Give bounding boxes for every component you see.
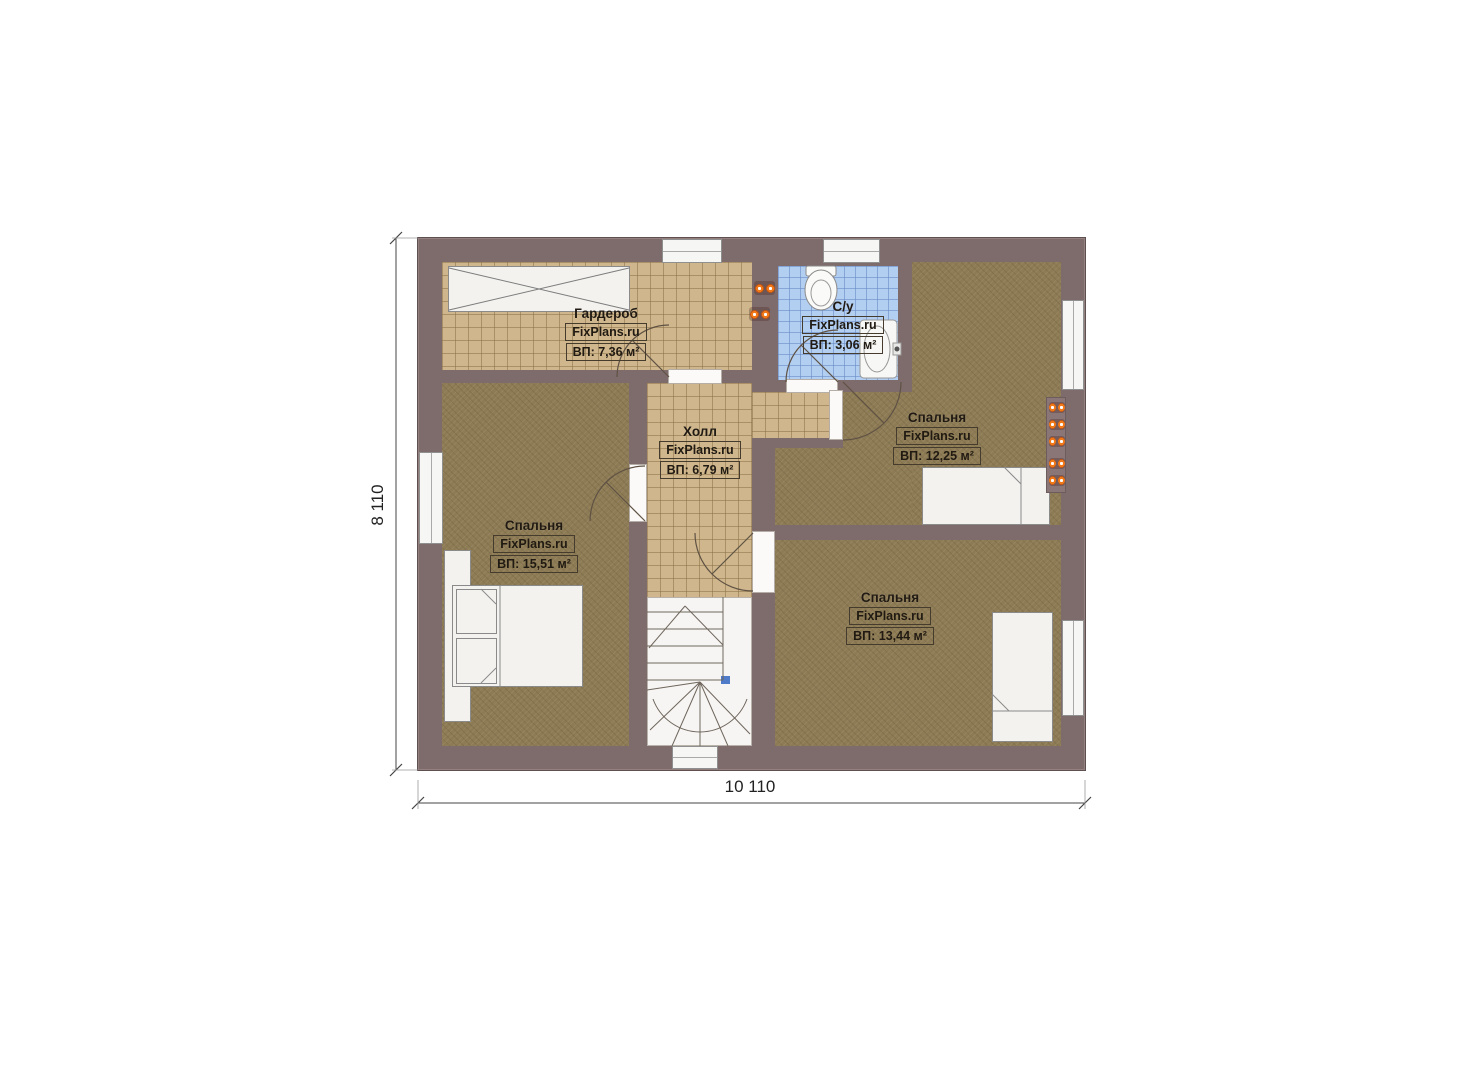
radiator-icon <box>1049 402 1065 413</box>
wall-hall-west <box>629 370 647 746</box>
brand-box: FixPlans.ru <box>849 607 930 625</box>
radiator-icon <box>1049 419 1065 430</box>
area-box: ВП: 15,51 м² <box>490 555 578 573</box>
window-top-2 <box>823 239 880 263</box>
area-box: ВП: 12,25 м² <box>893 447 981 465</box>
pillow <box>456 589 497 634</box>
room-name: Спальня <box>884 410 990 425</box>
area-box: ВП: 7,36 м² <box>566 343 647 361</box>
room-label-bathroom: С/у FixPlans.ru ВП: 3,06 м² <box>793 299 893 354</box>
floor-hall-corridor <box>752 392 830 438</box>
room-label-bedroom-left: Спальня FixPlans.ru ВП: 15,51 м² <box>478 518 590 573</box>
stair-marker <box>721 676 730 684</box>
radiator-icon <box>754 281 775 295</box>
floor-plan-page: Гардероб FixPlans.ru ВП: 7,36 м² С/у Fix… <box>0 0 1474 1080</box>
radiator-icon <box>749 307 770 321</box>
room-name: Спальня <box>836 590 944 605</box>
room-name: С/у <box>793 299 893 314</box>
door-bedroom-bottom <box>752 531 775 593</box>
window-right-1 <box>1062 300 1084 390</box>
floor-bedroom-right-alcove <box>772 448 843 525</box>
dimension-height-label: 8 110 <box>368 475 388 535</box>
door-wardrobe <box>668 369 722 384</box>
room-label-wardrobe: Гардероб FixPlans.ru ВП: 7,36 м² <box>536 306 676 361</box>
brand-box: FixPlans.ru <box>896 427 977 445</box>
door-bedroom-right <box>829 390 843 440</box>
room-name: Спальня <box>478 518 590 533</box>
brand-box: FixPlans.ru <box>802 316 883 334</box>
area-box: ВП: 13,44 м² <box>846 627 934 645</box>
door-bedroom-left <box>629 464 647 522</box>
stairwell <box>647 597 752 746</box>
brand-box: FixPlans.ru <box>659 441 740 459</box>
window-bottom <box>672 746 718 769</box>
radiator-icon <box>1049 458 1065 469</box>
room-label-bedroom-right: Спальня FixPlans.ru ВП: 12,25 м² <box>884 410 990 465</box>
area-box: ВП: 6,79 м² <box>660 461 741 479</box>
room-label-hall: Холл FixPlans.ru ВП: 6,79 м² <box>648 424 752 479</box>
room-name: Холл <box>648 424 752 439</box>
bed-right-bedroom <box>922 467 1050 525</box>
window-top-1 <box>662 239 722 263</box>
bed-bottom-bedroom <box>992 612 1053 742</box>
radiator-icon <box>1049 436 1065 447</box>
window-left <box>419 452 443 544</box>
radiator-icon <box>1049 475 1065 486</box>
floor-hall <box>647 383 752 597</box>
wall-bedrooms-divider <box>772 525 1061 540</box>
brand-box: FixPlans.ru <box>493 535 574 553</box>
dimension-width-label: 10 110 <box>700 777 800 797</box>
area-box: ВП: 3,06 м² <box>803 336 884 354</box>
room-name: Гардероб <box>536 306 676 321</box>
pillow <box>456 638 497 684</box>
wall-bathroom-east <box>898 262 912 392</box>
brand-box: FixPlans.ru <box>565 323 646 341</box>
window-right-2 <box>1062 620 1084 716</box>
room-label-bedroom-bottom: Спальня FixPlans.ru ВП: 13,44 м² <box>836 590 944 645</box>
